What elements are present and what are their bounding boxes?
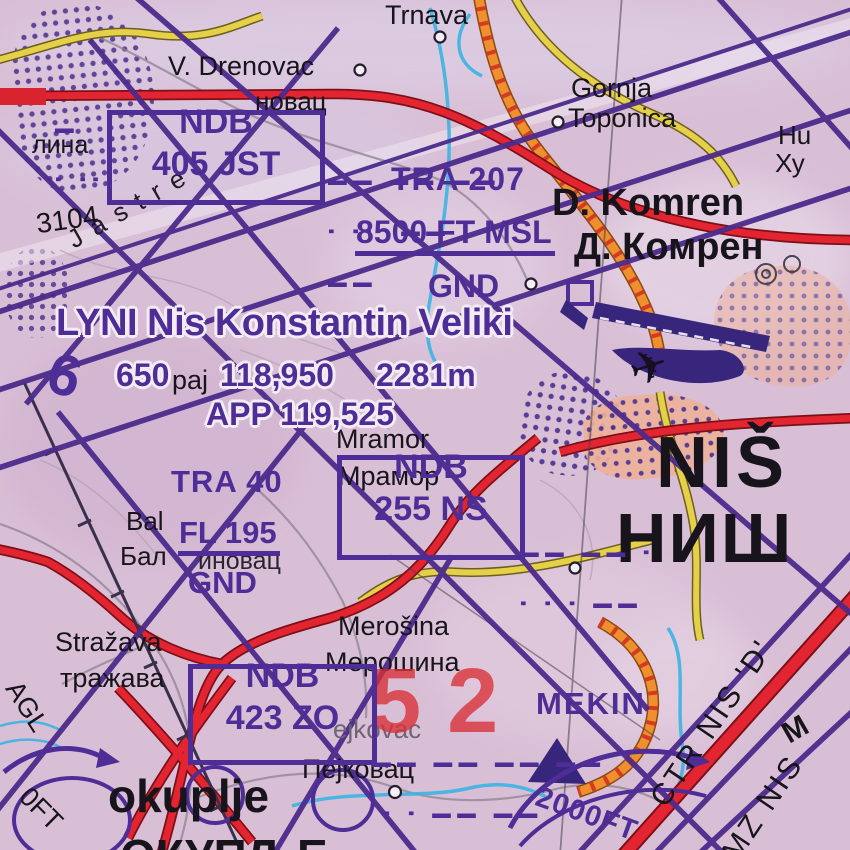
road-edge-block bbox=[0, 88, 46, 105]
ndb-type: NDB bbox=[342, 448, 520, 487]
morse-code-edge: ▬ ▪ ▪▪ bbox=[55, 86, 105, 222]
town-bal: Bal bbox=[126, 508, 164, 535]
airport-approach-frequency: APP 119,525 bbox=[206, 398, 394, 432]
city-nis: NIŠ bbox=[656, 426, 788, 502]
tra40-upper-text: FL 195 bbox=[178, 515, 280, 556]
airplane-icon: ✈ bbox=[622, 336, 675, 397]
morse-code-jst: ▬▬ ▬▬ ▬▬ ▪ ▪▪ ▬▬ ▬▬ bbox=[328, 138, 501, 325]
town-v-drenovac: V. Drenovac bbox=[168, 52, 314, 80]
town-gornja: Gornja bbox=[571, 74, 652, 102]
tra40-upper-limit: FL 195 bbox=[178, 517, 280, 550]
airport-runway-length: 2281m bbox=[376, 359, 476, 393]
town-hum: Hu bbox=[778, 122, 811, 149]
town-bal-cyrillic: Бал bbox=[120, 543, 167, 570]
ndb-ident: 423 ZO bbox=[193, 699, 372, 738]
airport-frequency: 118,950 bbox=[220, 359, 334, 393]
vfr-chart-nis: ✈ Trnava V. Drenovac новац Go bbox=[0, 0, 850, 850]
airport-bracket-icon bbox=[568, 282, 592, 304]
town-strazava-cyrillic: тражава bbox=[60, 664, 165, 692]
town-d-komren-cyrillic: Д. Комрен bbox=[574, 228, 764, 268]
airport-elevation: 650 bbox=[116, 359, 169, 393]
ndb-type: NDB bbox=[193, 657, 372, 696]
ndb-ident: 255 NS bbox=[342, 490, 520, 529]
ndb-type: NDB bbox=[112, 103, 320, 142]
town-prokuplje: okuplje bbox=[108, 772, 269, 820]
town-toponica: Toponica bbox=[568, 104, 676, 132]
town-d-komren: D. Komren bbox=[552, 184, 744, 224]
town-strazava: Stražava bbox=[55, 628, 162, 656]
town-hum-cyrillic: Ху bbox=[775, 150, 805, 177]
morse-code-ns: ▬▬ ▬▬ ▪ ▪ ▪ ▪ ▬▬ bbox=[520, 510, 656, 646]
navaid-ndb-jst: NDB 405 JST bbox=[107, 110, 325, 205]
town-prokuplje-cyrillic: ОКУПЉЕ bbox=[120, 832, 328, 850]
town-merosina: Merošina bbox=[338, 612, 449, 640]
navaid-ndb-zo: NDB 423 ZO bbox=[188, 664, 377, 765]
airport-title: LYNI Nis Konstantin Veliki bbox=[56, 304, 513, 344]
tra40-name: TRA 40 bbox=[171, 466, 283, 499]
airport-symbol: ✈ bbox=[560, 282, 770, 397]
town-trnava: Trnava bbox=[385, 1, 468, 29]
navaid-ndb-ns: NDB 255 NS bbox=[337, 455, 525, 560]
morse-code-zo: ▬▬ ▬▬ ▬▬ ▬▬ ▪ ▪ ▬▬ ▬▬ bbox=[372, 720, 606, 850]
airport-bg-fragment: paj bbox=[172, 366, 208, 394]
ndb-ident: 405 JST bbox=[112, 145, 320, 184]
tra40-lower-limit: GND bbox=[188, 567, 257, 600]
vfr-point-mekin: MEKIN bbox=[536, 688, 646, 721]
